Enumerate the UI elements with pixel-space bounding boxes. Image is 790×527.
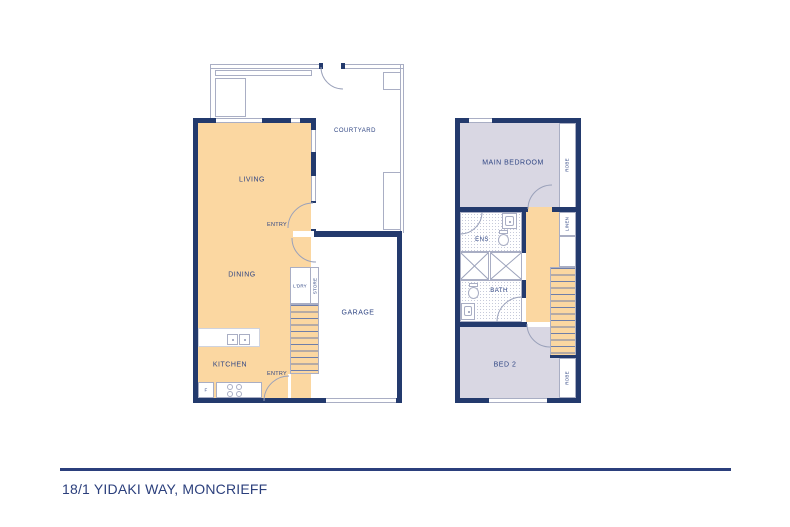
ensuite-label: ENS bbox=[475, 237, 489, 243]
shower bbox=[490, 252, 522, 280]
toilet bbox=[468, 287, 479, 299]
window bbox=[311, 130, 316, 152]
stairs-ground bbox=[290, 304, 319, 374]
stove-burner bbox=[236, 391, 242, 397]
linen-label: LINEN bbox=[565, 217, 570, 231]
gate-post bbox=[341, 63, 345, 69]
bed2-label: BED 2 bbox=[494, 362, 517, 369]
courtyard-planter bbox=[383, 172, 401, 230]
wall bbox=[455, 322, 527, 327]
stove-burner bbox=[227, 391, 233, 397]
wall bbox=[311, 231, 402, 237]
stairs-upper bbox=[550, 267, 576, 357]
window bbox=[469, 118, 492, 123]
wall bbox=[522, 280, 526, 298]
window bbox=[489, 398, 547, 403]
entry-label-top: ENTRY bbox=[267, 222, 287, 228]
wall bbox=[455, 207, 528, 212]
gate-swing-arc bbox=[321, 67, 343, 89]
robe-bottom-label: ROBE bbox=[565, 371, 570, 385]
courtyard-fence-line bbox=[343, 64, 403, 65]
courtyard-fence-line bbox=[210, 64, 322, 65]
courtyard-planter bbox=[215, 70, 312, 76]
wall bbox=[576, 118, 581, 403]
store-label: STORE bbox=[313, 278, 318, 294]
garage-label: GARAGE bbox=[342, 310, 375, 317]
door-opening bbox=[293, 231, 314, 237]
void-box bbox=[559, 236, 576, 267]
courtyard-label: COURTYARD bbox=[334, 128, 376, 134]
window bbox=[311, 176, 316, 201]
wall bbox=[455, 118, 460, 403]
address-title: 18/1 YIDAKI WAY, MONCRIEFF bbox=[62, 481, 267, 497]
wall bbox=[193, 118, 198, 403]
kitchen-sink bbox=[227, 334, 238, 345]
window bbox=[291, 118, 300, 123]
wall bbox=[397, 231, 402, 403]
ensuite-sink bbox=[505, 216, 514, 226]
bathroom-label: BATH bbox=[490, 288, 508, 294]
toilet bbox=[498, 234, 509, 246]
robe-top-label: ROBE bbox=[565, 158, 570, 172]
garage-door bbox=[326, 398, 396, 403]
gate-post bbox=[319, 63, 323, 69]
doorway-gap bbox=[288, 374, 291, 398]
stove-burner bbox=[227, 384, 233, 390]
courtyard-planter bbox=[383, 72, 401, 90]
living-label: LIVING bbox=[239, 177, 265, 184]
bathroom-sink bbox=[464, 306, 472, 316]
laundry-label: L'DRY bbox=[293, 284, 307, 289]
footer-rule bbox=[60, 468, 731, 471]
fridge-label: F bbox=[205, 388, 208, 393]
courtyard-fence-line bbox=[210, 64, 211, 118]
entry-label-bottom: ENTRY bbox=[267, 371, 287, 377]
kitchen-sink bbox=[239, 334, 250, 345]
door-opening bbox=[311, 203, 316, 229]
stove-burner bbox=[236, 384, 242, 390]
wall bbox=[552, 207, 576, 212]
dining-label: DINING bbox=[228, 272, 256, 279]
floorplan-canvas: COURTYARD LIVING ENTRY DINING L'DRY STOR… bbox=[0, 0, 790, 527]
courtyard-fence-line bbox=[403, 64, 404, 233]
wall bbox=[550, 355, 576, 358]
shower bbox=[460, 252, 489, 280]
kitchen-label: KITCHEN bbox=[213, 362, 247, 369]
courtyard-fence-line bbox=[210, 68, 322, 69]
window bbox=[216, 118, 262, 123]
courtyard-fence-line bbox=[343, 68, 403, 69]
courtyard-planter bbox=[215, 78, 246, 117]
main-bedroom-label: MAIN BEDROOM bbox=[482, 160, 544, 167]
wall bbox=[522, 207, 526, 253]
